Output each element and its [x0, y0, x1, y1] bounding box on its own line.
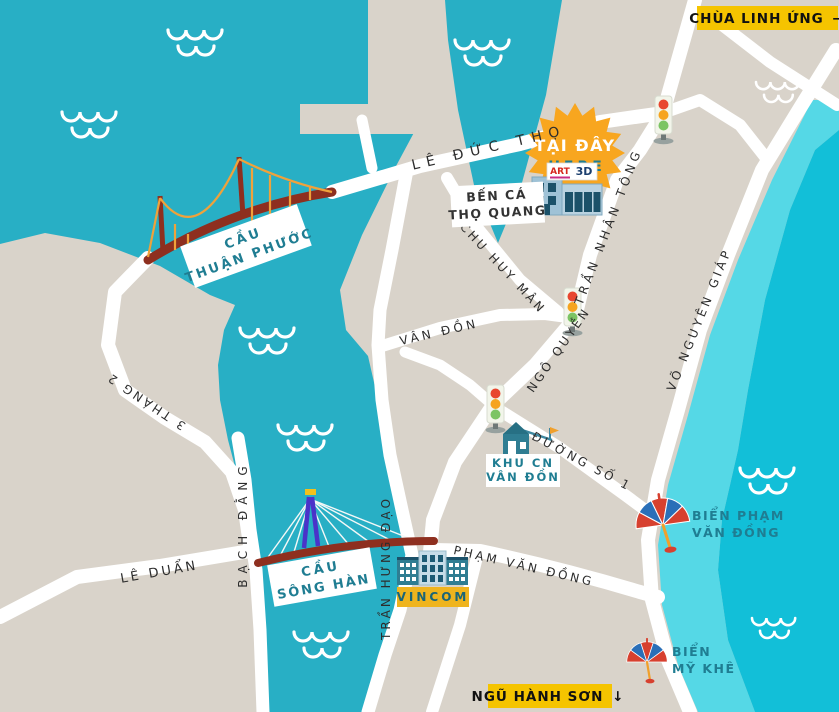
svg-text:BIỂN PHẠM: BIỂN PHẠM: [692, 506, 785, 523]
ngu-hanh-son-badge: NGŨ HÀNH SƠN ↓: [472, 684, 625, 708]
svg-text:BẾN CÁ: BẾN CÁ: [466, 185, 527, 204]
sign-3d-text: 3D: [576, 165, 593, 178]
arrow-down-icon: ↓: [612, 689, 624, 705]
art-in-paradise-sign: ART 3D: [547, 163, 597, 180]
street-bach-dang-label: BẠCH ĐẰNG: [234, 460, 250, 587]
svg-text:CHÙA LINH ỨNG →: CHÙA LINH ỨNG →: [689, 9, 839, 27]
vincom-label: VINCOM: [397, 590, 470, 604]
chua-linh-ung-text: CHÙA LINH ỨNG: [689, 9, 823, 27]
pier-north: [368, 0, 438, 110]
svg-text:VÂN ĐỒN: VÂN ĐỒN: [486, 467, 560, 484]
svg-text:BIỂN: BIỂN: [672, 642, 711, 659]
svg-text:MỸ KHÊ: MỸ KHÊ: [672, 661, 736, 676]
khu-cn-van-don-label: KHU CN VÂN ĐỒN: [486, 454, 560, 487]
svg-text:KHU CN: KHU CN: [492, 456, 554, 470]
vincom-building: VINCOM: [397, 551, 470, 607]
chua-linh-ung-badge: CHÙA LINH ỨNG →: [689, 6, 839, 30]
svg-text:NGŨ HÀNH SƠN ↓: NGŨ HÀNH SƠN ↓: [472, 687, 625, 705]
arrow-right-icon: →: [832, 11, 839, 27]
street-tran-hung-dao-label: TRẦN HƯNG ĐẠO: [377, 496, 393, 641]
danang-map: TẠI ĐÂY HERE ART 3D: [0, 0, 839, 712]
ben-ca-tho-quang-label: BẾN CÁ THỌ QUANG: [447, 181, 547, 227]
ngu-hanh-son-text: NGŨ HÀNH SƠN: [472, 687, 604, 705]
svg-text:VĂN ĐỒNG: VĂN ĐỒNG: [692, 523, 780, 540]
sign-art-text: ART: [550, 167, 570, 177]
